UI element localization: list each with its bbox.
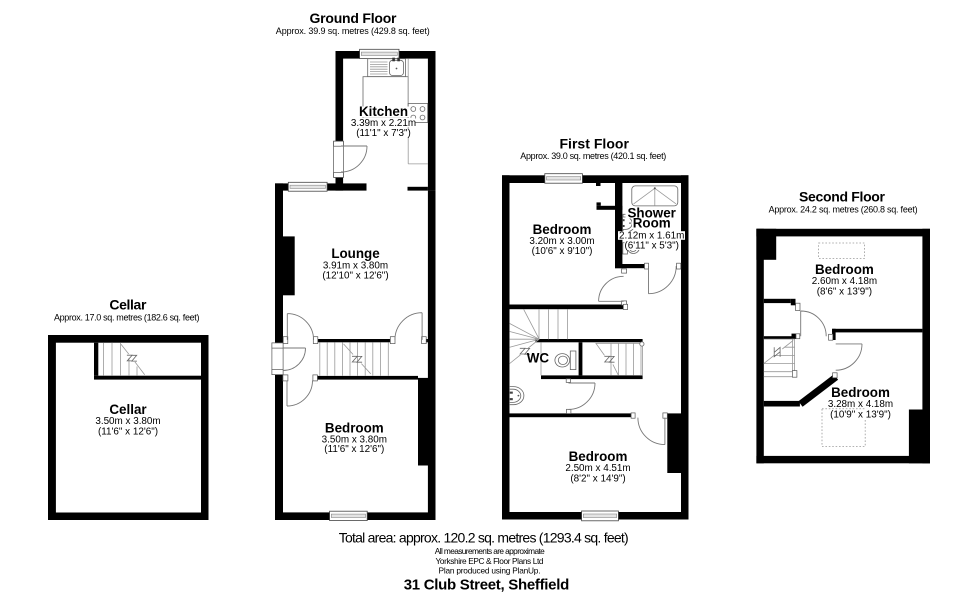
svg-text:All measurements are approxima: All measurements are approximate <box>435 546 545 556</box>
svg-text:(10'9" x 13'9"): (10'9" x 13'9") <box>830 409 891 420</box>
svg-text:First Floor: First Floor <box>559 136 629 152</box>
svg-text:Room: Room <box>633 216 671 231</box>
svg-text:(11'6" x 12'6"): (11'6" x 12'6") <box>98 426 158 437</box>
svg-text:Bedroom: Bedroom <box>831 385 890 400</box>
svg-text:Approx. 39.0 sq. metres (420.1: Approx. 39.0 sq. metres (420.1 sq. feet) <box>520 151 666 161</box>
svg-text:Kitchen: Kitchen <box>359 104 408 119</box>
svg-text:Bedroom: Bedroom <box>325 420 384 435</box>
svg-text:Lounge: Lounge <box>331 246 379 261</box>
svg-text:(8'6" x 13'9"): (8'6" x 13'9") <box>817 286 872 297</box>
svg-text:Total area: approx. 120.2 sq.: Total area: approx. 120.2 sq. metres (12… <box>339 529 629 545</box>
svg-text:Bedroom: Bedroom <box>815 262 874 277</box>
svg-text:Cellar: Cellar <box>109 297 147 313</box>
svg-text:(6'11" x 5'3"): (6'11" x 5'3") <box>624 241 679 252</box>
svg-text:Approx. 24.2 sq. metres (260.8: Approx. 24.2 sq. metres (260.8 sq. feet) <box>769 204 918 214</box>
svg-text:WC: WC <box>527 351 550 366</box>
svg-text:(11'1" x 7'3"): (11'1" x 7'3") <box>356 128 411 139</box>
svg-text:Second Floor: Second Floor <box>799 189 886 205</box>
svg-text:(10'6" x 9'10"): (10'6" x 9'10") <box>532 246 593 257</box>
svg-text:(12'10" x 12'6"): (12'10" x 12'6") <box>322 271 388 282</box>
svg-text:(8'2" x 14'9"): (8'2" x 14'9") <box>570 473 625 484</box>
svg-text:Approx. 39.9 sq. metres (429.8: Approx. 39.9 sq. metres (429.8 sq. feet) <box>276 26 430 36</box>
svg-text:(11'6" x 12'6"): (11'6" x 12'6") <box>324 444 384 455</box>
svg-text:31 Club Street, Sheffield: 31 Club Street, Sheffield <box>404 577 570 594</box>
svg-text:Bedroom: Bedroom <box>569 449 628 464</box>
svg-text:Cellar: Cellar <box>109 402 147 417</box>
svg-text:Ground Floor: Ground Floor <box>310 10 398 26</box>
svg-text:Approx. 17.0 sq. metres (182.6: Approx. 17.0 sq. metres (182.6 sq. feet) <box>54 312 200 322</box>
svg-text:Plan produced using PlanUp.: Plan produced using PlanUp. <box>439 565 541 575</box>
svg-text:Bedroom: Bedroom <box>533 222 592 237</box>
